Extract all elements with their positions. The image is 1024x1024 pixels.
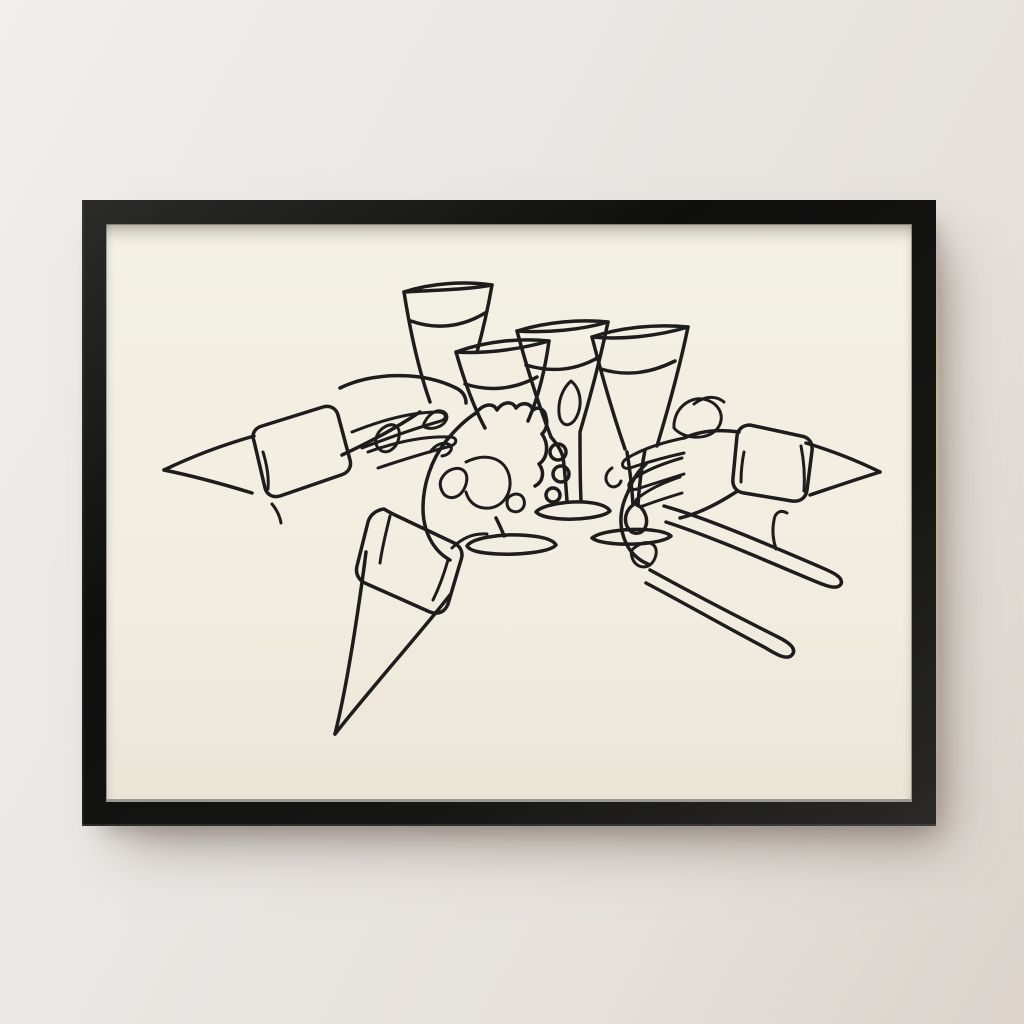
picture-frame [82, 200, 936, 826]
knuckle-ring [546, 488, 560, 502]
left-upper-arm [164, 376, 466, 523]
stemmed-glass-left [456, 340, 556, 554]
background-finger [559, 381, 580, 425]
right-lower-hand [621, 464, 842, 657]
art-print-paper [106, 224, 912, 802]
line-art-toast-illustration [106, 224, 912, 802]
shirt-cuff [733, 425, 812, 501]
thumb [440, 468, 467, 497]
right-upper-arm [606, 397, 880, 518]
wall: { "meta": { "description": "Photograph-s… [0, 0, 1024, 1024]
thumb [674, 399, 721, 437]
knuckles [476, 403, 547, 434]
stemmed-glass-right [592, 326, 688, 544]
